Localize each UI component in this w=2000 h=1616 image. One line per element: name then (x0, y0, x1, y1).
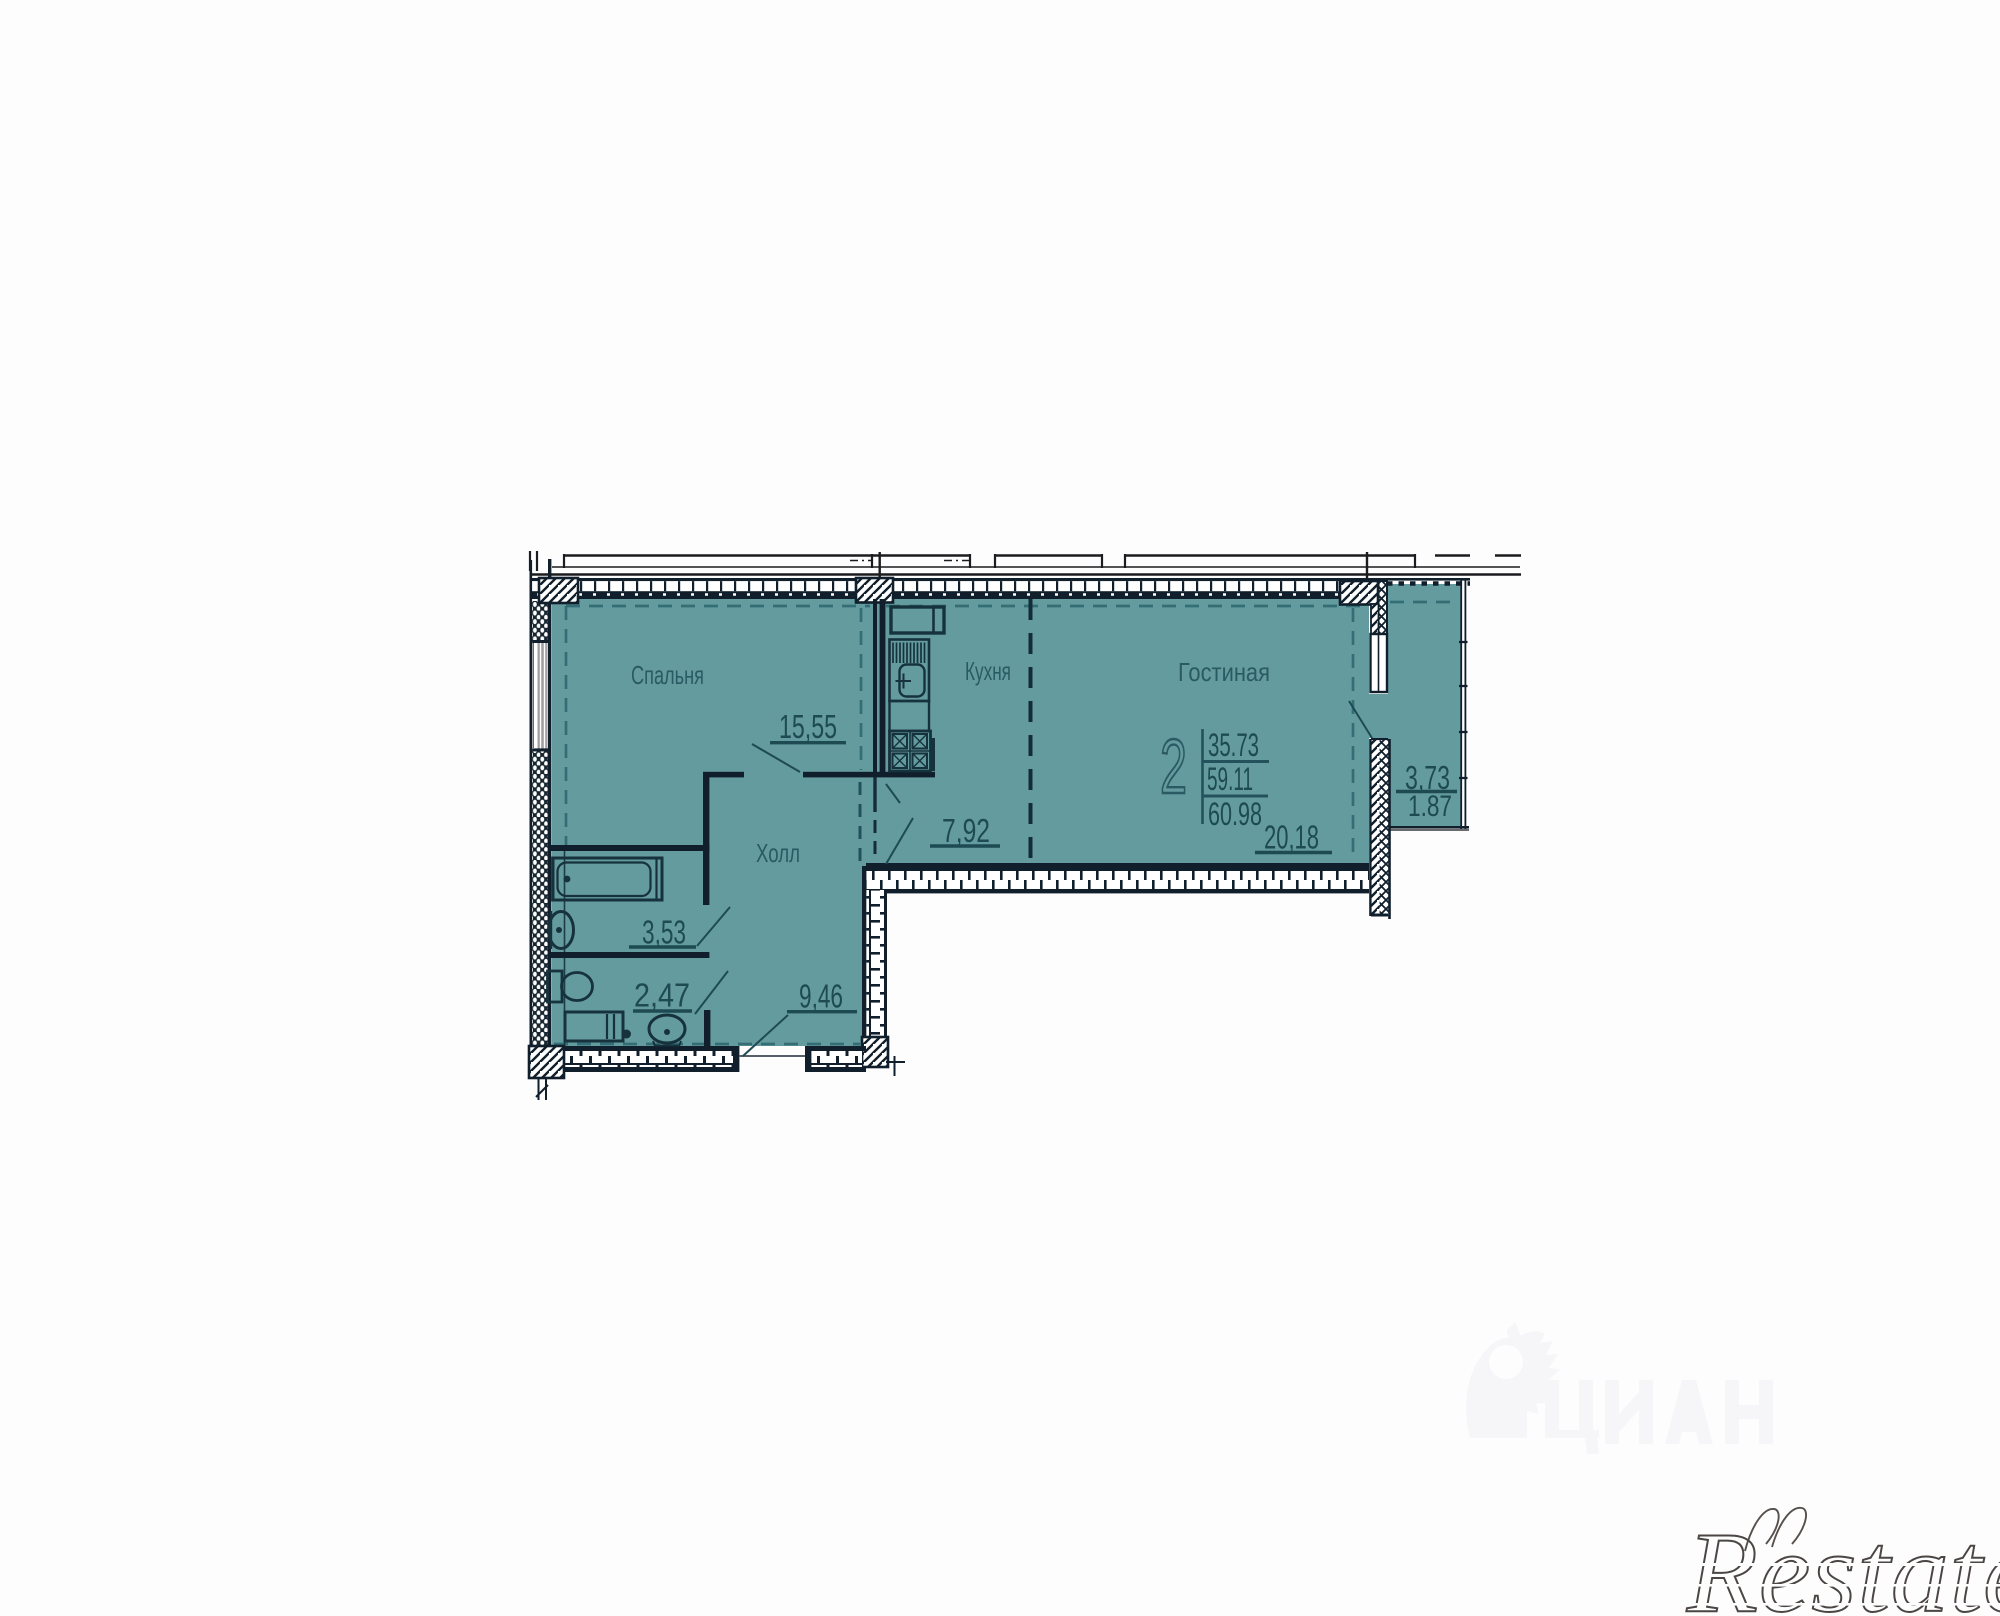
svg-text:Гостиная: Гостиная (1178, 657, 1270, 687)
svg-text:2: 2 (1160, 724, 1187, 810)
svg-text:7,92: 7,92 (942, 812, 990, 849)
svg-text:60.98: 60.98 (1208, 796, 1262, 832)
svg-text:2,47: 2,47 (634, 977, 690, 1014)
svg-text:3,53: 3,53 (642, 914, 686, 951)
svg-text:59.11: 59.11 (1207, 761, 1253, 797)
svg-text:Холл: Холл (756, 838, 800, 868)
svg-text:35.73: 35.73 (1208, 727, 1259, 763)
svg-text:1.87: 1.87 (1408, 790, 1452, 823)
svg-text:20,18: 20,18 (1264, 819, 1319, 856)
svg-text:15,55: 15,55 (779, 708, 837, 745)
svg-text:Кухня: Кухня (965, 656, 1011, 686)
svg-text:Спальня: Спальня (631, 660, 704, 690)
svg-text:Restate: Restate (1686, 1509, 2000, 1616)
svg-text:9,46: 9,46 (799, 978, 843, 1015)
